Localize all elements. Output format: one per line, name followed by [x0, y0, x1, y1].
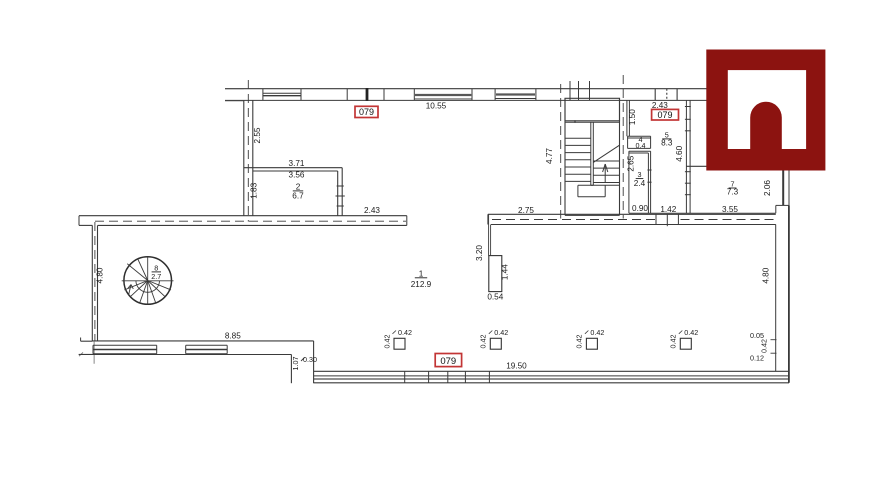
- svg-text:1.42: 1.42: [660, 205, 676, 214]
- svg-text:079: 079: [440, 356, 456, 367]
- svg-text:079: 079: [359, 107, 374, 117]
- svg-text:3.20: 3.20: [475, 245, 484, 261]
- svg-text:0.05: 0.05: [750, 331, 764, 340]
- svg-text:2.43: 2.43: [364, 206, 380, 215]
- svg-text:3.71: 3.71: [289, 159, 305, 168]
- svg-text:0.12: 0.12: [750, 354, 764, 363]
- svg-text:10.55: 10.55: [426, 102, 447, 111]
- svg-text:4.80: 4.80: [762, 267, 771, 283]
- svg-text:0.54: 0.54: [487, 292, 503, 301]
- svg-text:3: 3: [638, 170, 642, 179]
- svg-text:212.9: 212.9: [411, 280, 432, 289]
- svg-text:0.42: 0.42: [494, 328, 508, 337]
- svg-text:0.42: 0.42: [684, 328, 698, 337]
- svg-text:8.85: 8.85: [225, 332, 241, 341]
- svg-text:0.4: 0.4: [636, 141, 646, 150]
- svg-text:19.50: 19.50: [506, 362, 527, 371]
- svg-text:7.3: 7.3: [727, 188, 739, 197]
- svg-text:0.42: 0.42: [759, 339, 768, 353]
- svg-text:2.65: 2.65: [626, 155, 635, 171]
- svg-text:0.42: 0.42: [590, 328, 604, 337]
- svg-text:0.42: 0.42: [575, 335, 584, 349]
- svg-text:4.60: 4.60: [675, 145, 684, 161]
- svg-text:079: 079: [657, 110, 672, 120]
- svg-text:8.3: 8.3: [661, 139, 673, 148]
- svg-text:0.30: 0.30: [303, 355, 317, 364]
- svg-text:6.7: 6.7: [292, 192, 304, 201]
- svg-text:0.42: 0.42: [382, 335, 391, 349]
- svg-text:2.06: 2.06: [763, 180, 772, 196]
- svg-text:2.4: 2.4: [634, 179, 646, 188]
- svg-text:0.90: 0.90: [632, 204, 648, 213]
- svg-text:0.42: 0.42: [479, 335, 488, 349]
- svg-text:1.44: 1.44: [501, 264, 510, 280]
- svg-text:1.50: 1.50: [628, 109, 637, 125]
- svg-text:2.7: 2.7: [151, 272, 161, 281]
- svg-text:3.55: 3.55: [722, 205, 738, 214]
- svg-text:0.42: 0.42: [669, 335, 678, 349]
- svg-text:2.75: 2.75: [518, 206, 534, 215]
- svg-text:2.55: 2.55: [253, 127, 262, 143]
- svg-text:4.80: 4.80: [95, 267, 104, 283]
- svg-text:1.07: 1.07: [291, 357, 300, 371]
- svg-text:0.42: 0.42: [398, 328, 412, 337]
- svg-text:1.83: 1.83: [250, 182, 259, 198]
- svg-text:2: 2: [296, 182, 301, 191]
- svg-text:3.56: 3.56: [289, 171, 305, 180]
- svg-text:1: 1: [419, 269, 424, 278]
- svg-text:4.77: 4.77: [545, 148, 554, 164]
